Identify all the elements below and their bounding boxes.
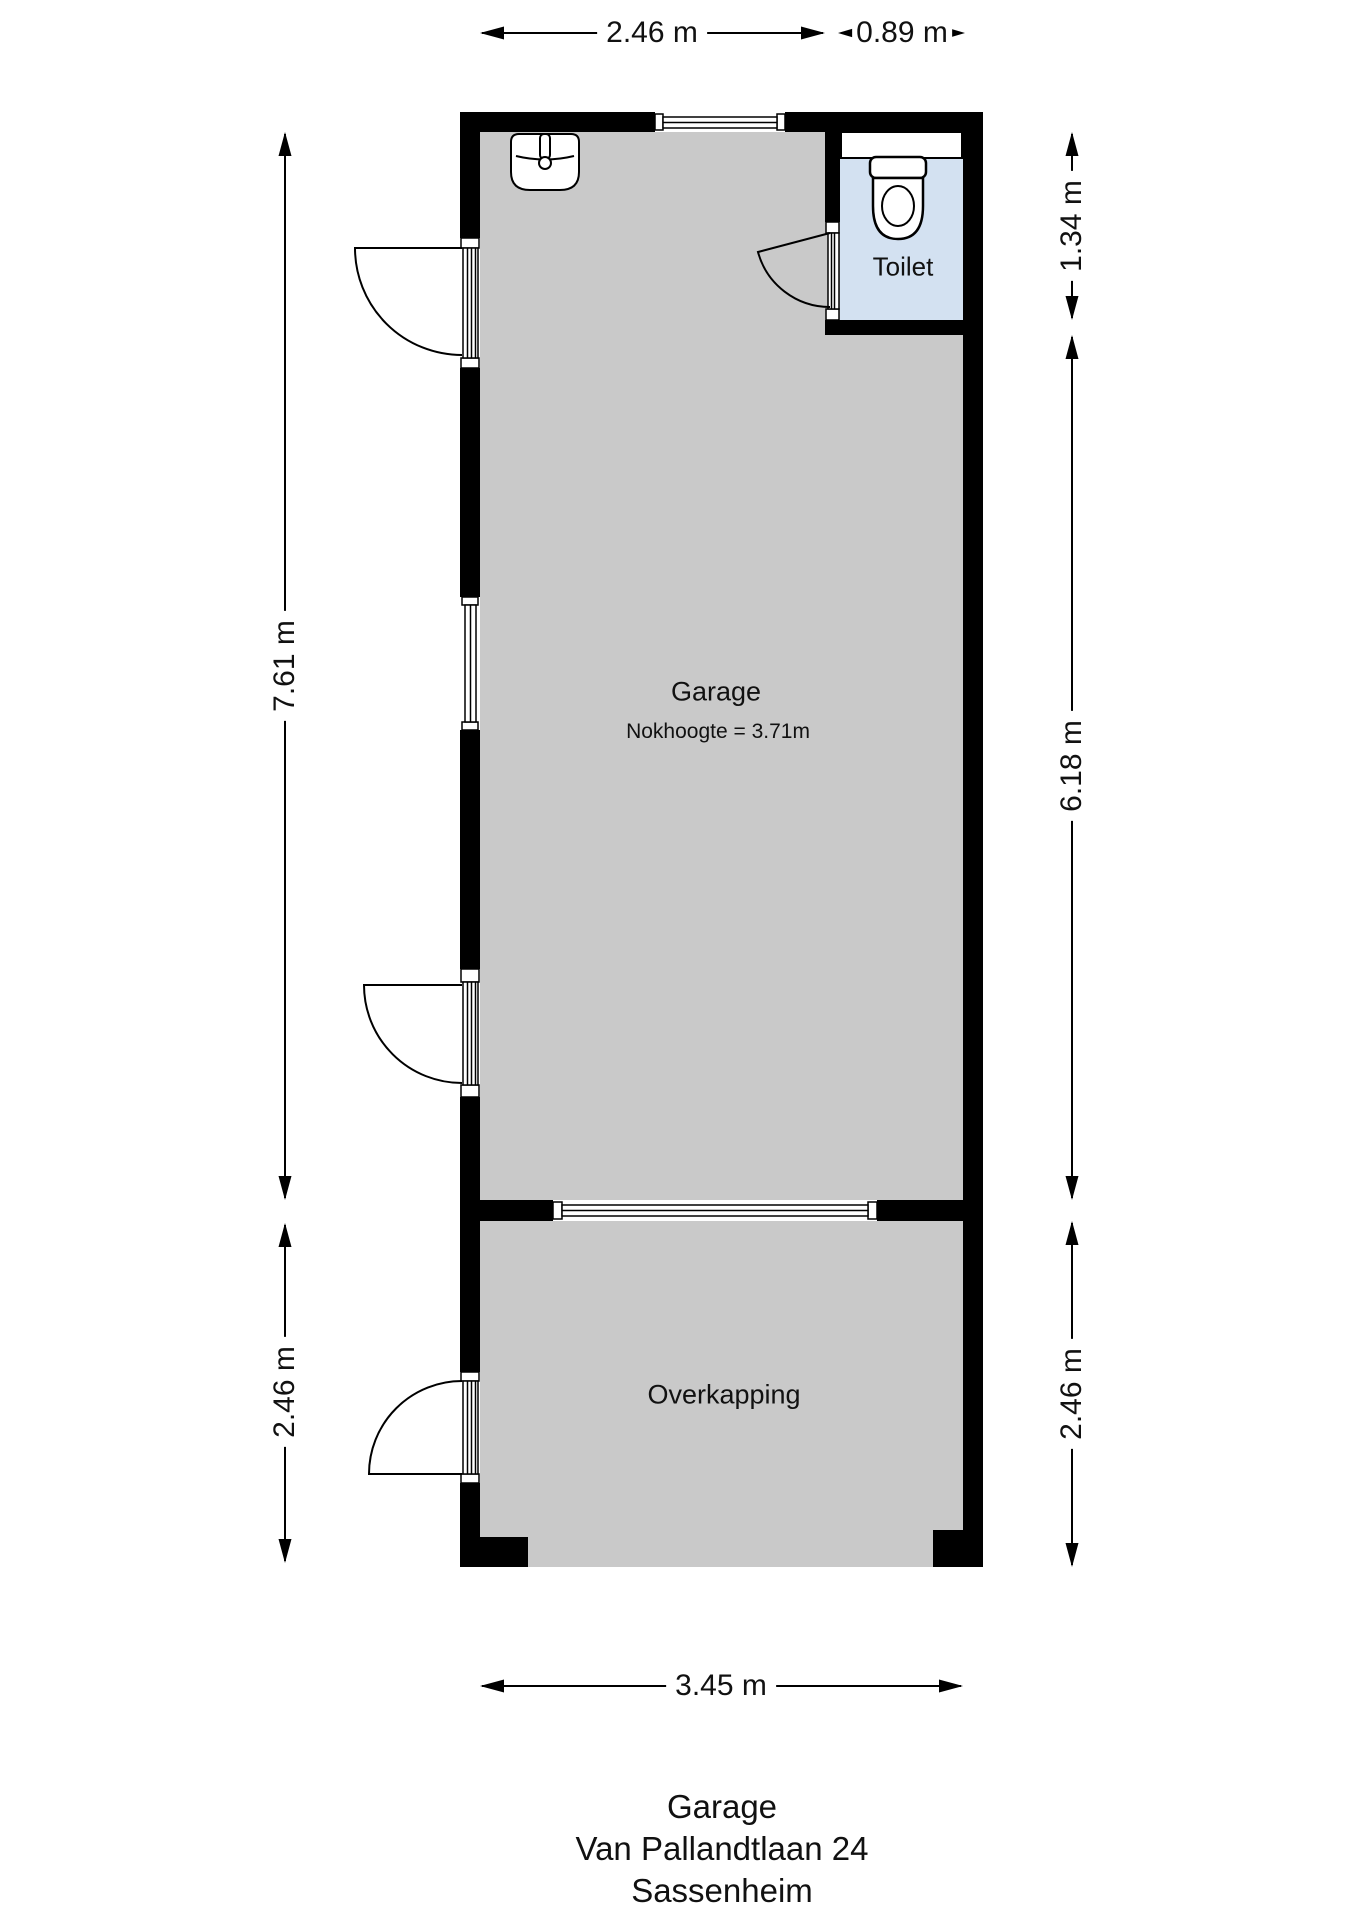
room-label-garage: Garage [671, 677, 761, 708]
wall-left-3 [460, 730, 480, 969]
dimension-label-top-toilet-width: 0.89 m [852, 16, 952, 50]
title-line-1: Garage [576, 1786, 869, 1828]
door-left-upper [461, 238, 479, 368]
wall-left-1 [460, 112, 480, 238]
title-block: Garage Van Pallandtlaan 24 Sassenheim [576, 1786, 869, 1912]
sink-icon [511, 134, 579, 190]
dimension-label-left-garage-height: 7.61 m [268, 611, 302, 721]
dimension-label-bottom-width: 3.45 m [666, 1669, 776, 1703]
room-label-toilet: Toilet [873, 252, 934, 283]
wall-top-left [460, 112, 655, 132]
wall-divider-left [480, 1200, 553, 1221]
door-swing-arc-middle [364, 985, 462, 1083]
wall-top-right [785, 112, 983, 132]
wall-divider-right [877, 1200, 963, 1221]
door-swing-arc-upper [355, 248, 462, 355]
wall-left-foot [480, 1537, 528, 1567]
wall-toilet-bottom [825, 320, 983, 335]
toilet-shelf [841, 132, 962, 158]
toilet-icon [870, 157, 926, 239]
wall-right-foot [933, 1530, 963, 1567]
window-top [655, 113, 785, 131]
wall-left-5 [460, 1483, 480, 1567]
wall-toilet-partition [825, 132, 840, 222]
door-left-middle [461, 969, 479, 1097]
title-line-3: Sassenheim [576, 1870, 869, 1912]
window-divider [553, 1201, 877, 1220]
floorplan-drawing [0, 0, 1358, 1920]
dimension-label-right-overkapping-height: 2.46 m [1055, 1339, 1089, 1449]
dimension-label-top-garage-width: 2.46 m [597, 16, 707, 50]
door-left-overkapping [461, 1372, 479, 1483]
dimension-label-right-toilet-height: 1.34 m [1055, 171, 1089, 281]
door-swing-arc-overkapping [369, 1381, 462, 1474]
room-label-overkapping: Overkapping [647, 1380, 800, 1411]
wall-left-2 [460, 368, 480, 597]
dimension-label-left-overkapping-height: 2.46 m [268, 1337, 302, 1447]
room-note-garage: Nokhoogte = 3.71m [626, 720, 810, 744]
window-left [461, 597, 480, 730]
dimension-label-right-garage-height: 6.18 m [1055, 711, 1089, 821]
wall-left-4 [460, 1097, 480, 1372]
door-toilet [826, 222, 839, 320]
title-line-2: Van Pallandtlaan 24 [576, 1828, 869, 1870]
